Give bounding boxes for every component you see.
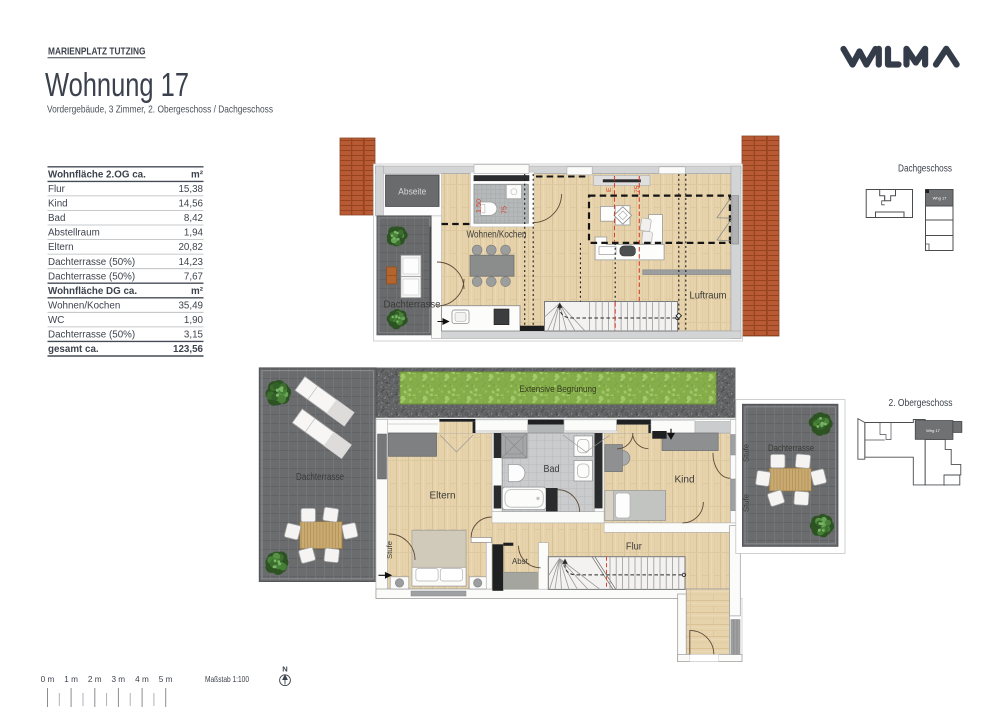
svg-text:Bad: Bad — [48, 213, 65, 224]
svg-text:Eltern: Eltern — [48, 242, 74, 253]
svg-text:Vordergebäude, 3 Zimmer, 2. Ob: Vordergebäude, 3 Zimmer, 2. Obergeschoss… — [47, 105, 273, 116]
svg-text:1 m: 1 m — [64, 675, 78, 684]
svg-text:m²: m² — [191, 170, 204, 181]
svg-text:Luftraum: Luftraum — [690, 291, 727, 302]
svg-text:WC: WC — [48, 315, 64, 326]
svg-text:0 m: 0 m — [41, 675, 55, 684]
svg-text:Flur: Flur — [626, 542, 642, 553]
svg-text:MARIENPLATZ TUTZING: MARIENPLATZ TUTZING — [48, 47, 146, 58]
svg-text:Wohnung 17: Wohnung 17 — [45, 67, 189, 104]
svg-text:35,49: 35,49 — [178, 300, 203, 311]
svg-text:Maßstab 1:100: Maßstab 1:100 — [205, 674, 249, 684]
svg-text:Bad: Bad — [544, 464, 560, 475]
svg-text:Dachterrasse: Dachterrasse — [296, 472, 344, 483]
svg-text:15,38: 15,38 — [178, 184, 203, 195]
svg-text:1,94: 1,94 — [184, 228, 204, 239]
svg-text:Whg 17: Whg 17 — [933, 196, 948, 201]
svg-text:Wohnen/Kochen: Wohnen/Kochen — [467, 230, 527, 241]
svg-text:75: 75 — [500, 206, 509, 214]
svg-text:Stufe: Stufe — [385, 541, 394, 559]
svg-text:Wohnen/Kochen: Wohnen/Kochen — [48, 300, 120, 311]
svg-text:m²: m² — [191, 286, 204, 297]
svg-text:Wohnfläche 2.OG ca.: Wohnfläche 2.OG ca. — [48, 170, 146, 181]
svg-text:Flur: Flur — [48, 184, 66, 195]
svg-text:4 m: 4 m — [135, 675, 149, 684]
svg-text:Dachterrasse (50%): Dachterrasse (50%) — [48, 257, 135, 268]
svg-text:7,67: 7,67 — [184, 271, 203, 282]
svg-text:Dachgeschoss: Dachgeschoss — [898, 164, 952, 175]
svg-text:Stufe: Stufe — [742, 494, 751, 512]
svg-text:Eltern: Eltern — [430, 491, 456, 502]
svg-text:Extensive Begrünung: Extensive Begrünung — [520, 384, 597, 394]
svg-text:14,56: 14,56 — [178, 199, 203, 210]
svg-text:1,50: 1,50 — [474, 199, 483, 213]
svg-text:Wohnfläche DG ca.: Wohnfläche DG ca. — [48, 286, 137, 297]
svg-text:123,56: 123,56 — [173, 344, 204, 355]
svg-text:14,23: 14,23 — [178, 257, 203, 268]
svg-text:N: N — [282, 665, 287, 674]
svg-text:Dachterrasse: Dachterrasse — [768, 443, 814, 454]
svg-text:8,42: 8,42 — [184, 213, 203, 224]
svg-text:E: E — [606, 187, 613, 192]
svg-text:Dachterrasse: Dachterrasse — [384, 300, 441, 311]
svg-text:75: 75 — [634, 185, 641, 193]
svg-text:2 m: 2 m — [88, 675, 102, 684]
svg-text:Kind: Kind — [675, 475, 695, 486]
svg-text:Dachterrasse (50%): Dachterrasse (50%) — [48, 271, 135, 282]
svg-text:3 m: 3 m — [111, 675, 125, 684]
svg-text:Stufe: Stufe — [742, 444, 751, 462]
svg-text:gesamt ca.: gesamt ca. — [48, 344, 99, 355]
svg-text:Abst.: Abst. — [512, 556, 530, 566]
svg-text:Dachterrasse (50%): Dachterrasse (50%) — [48, 330, 135, 341]
svg-text:5 m: 5 m — [159, 675, 173, 684]
svg-text:Kind: Kind — [48, 199, 68, 210]
svg-text:3,15: 3,15 — [184, 330, 204, 341]
svg-text:2. Obergeschoss: 2. Obergeschoss — [889, 398, 953, 409]
svg-text:1,90: 1,90 — [184, 315, 204, 326]
svg-text:Abstellraum: Abstellraum — [48, 228, 100, 239]
svg-text:20,82: 20,82 — [178, 242, 203, 253]
svg-text:Abseite: Abseite — [398, 187, 426, 198]
svg-text:Whg 17: Whg 17 — [926, 428, 941, 433]
